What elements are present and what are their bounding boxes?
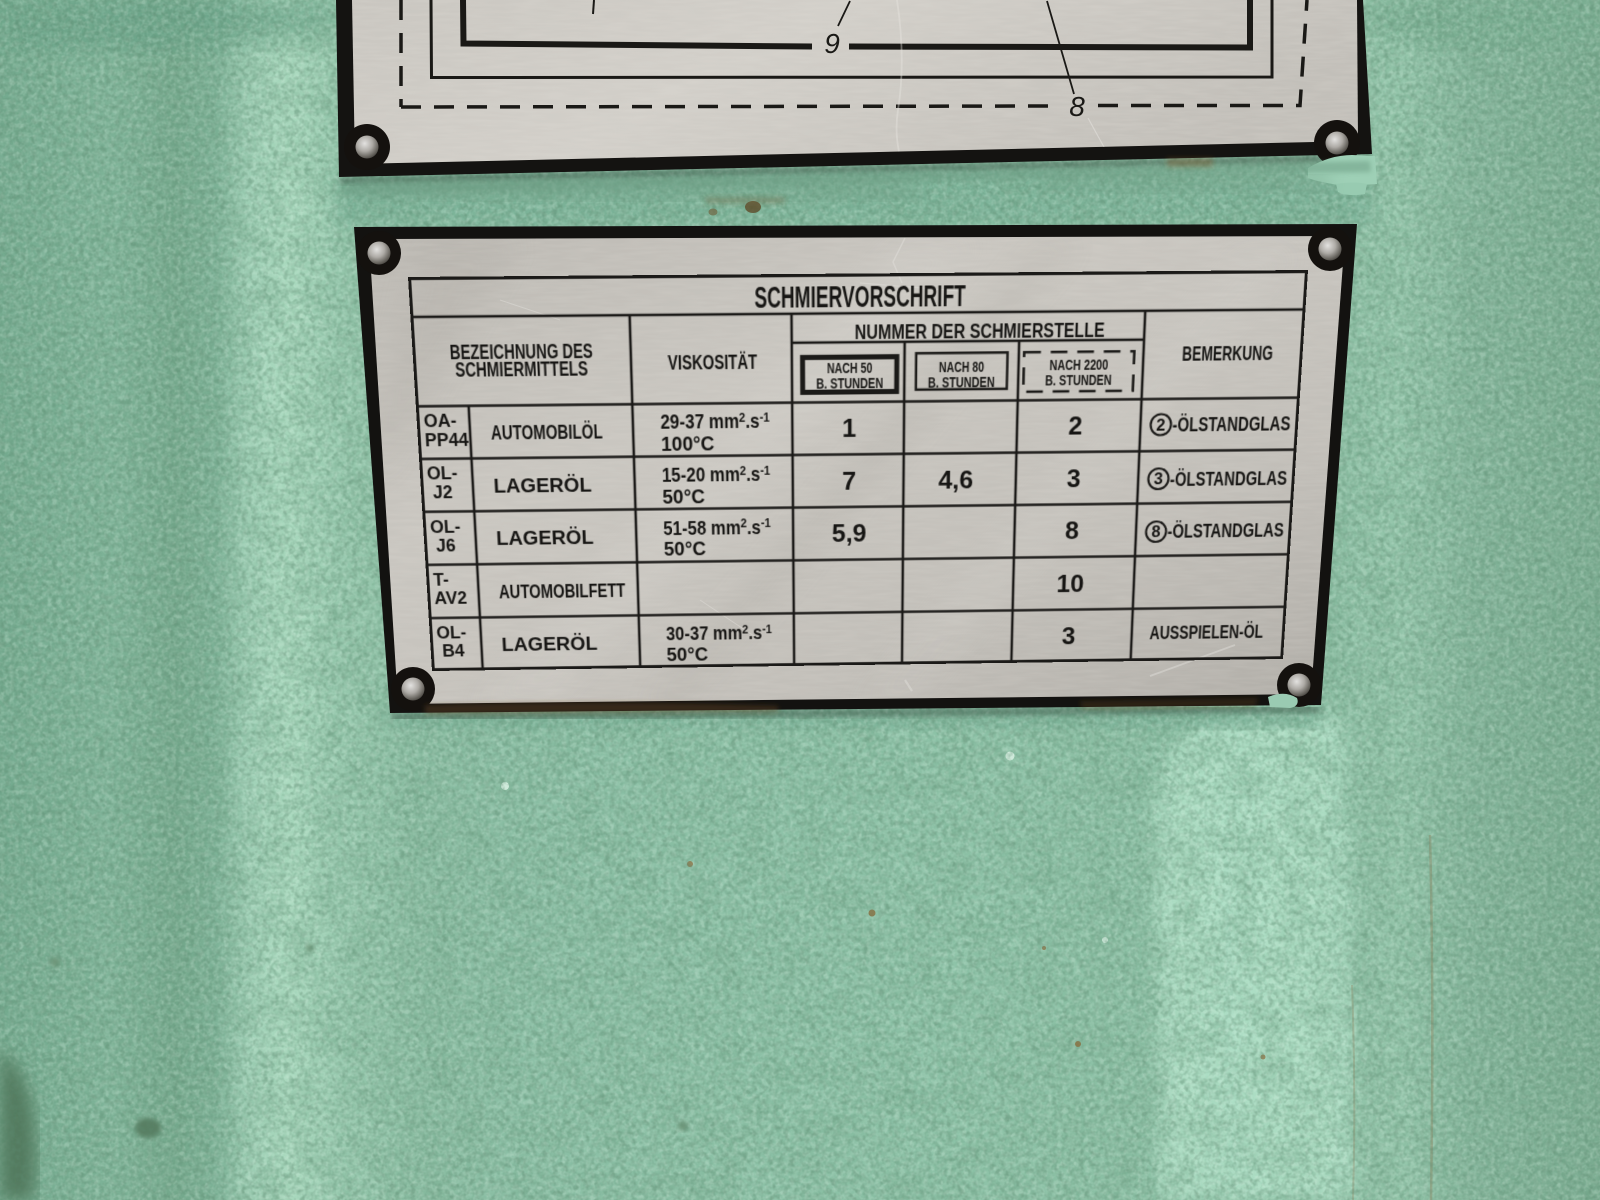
svg-text:NACH 2200: NACH 2200 [1049,359,1108,375]
svg-text:50°C: 50°C [664,539,707,561]
svg-text:BEMERKUNG: BEMERKUNG [1182,341,1274,366]
svg-text:50°C: 50°C [662,486,705,508]
svg-text:50°C: 50°C [666,645,708,666]
svg-text:29-37 mm2.s-1: 29-37 mm2.s-1 [660,410,770,434]
svg-text:NUMMER DER SCHMIERSTELLE: NUMMER DER SCHMIERSTELLE [855,318,1105,344]
svg-text:J6: J6 [436,537,457,557]
svg-text:4,6: 4,6 [938,465,973,494]
svg-text:AUTOMOBILFETT: AUTOMOBILFETT [498,580,625,603]
svg-text:8: 8 [1069,91,1085,122]
svg-text:-ÖLSTANDGLAS: -ÖLSTANDGLAS [1169,466,1287,490]
svg-text:100°C: 100°C [661,434,715,456]
svg-text:NACH 50: NACH 50 [827,362,872,378]
svg-text:LAGERÖL: LAGERÖL [501,632,598,656]
svg-text:OA-: OA- [423,412,457,432]
svg-text:1: 1 [842,414,856,443]
svg-text:J2: J2 [432,484,453,504]
svg-text:B. STUNDEN: B. STUNDEN [1045,374,1112,390]
svg-text:7: 7 [842,466,856,495]
svg-text:T-: T- [433,571,450,590]
svg-text:OL-: OL- [436,624,467,643]
svg-text:2: 2 [1156,416,1166,435]
svg-text:2: 2 [1068,411,1083,440]
svg-text:15-20 mm2.s-1: 15-20 mm2.s-1 [662,463,771,487]
svg-text:8: 8 [1065,517,1080,546]
svg-text:SCHMIERVORSCHRIFT: SCHMIERVORSCHRIFT [754,278,966,315]
svg-text:-ÖLSTANDGLAS: -ÖLSTANDGLAS [1172,412,1291,437]
svg-text:51-58 mm2.s-1: 51-58 mm2.s-1 [663,516,771,540]
svg-text:AUSSPIELEN-ÖL: AUSSPIELEN-ÖL [1149,620,1264,644]
svg-text:OL-: OL- [430,518,461,538]
svg-text:9: 9 [824,28,840,59]
svg-text:SCHMIERMITTELS: SCHMIERMITTELS [455,358,589,382]
svg-text:AUTOMOBILÖL: AUTOMOBILÖL [490,420,603,445]
svg-text:LAGERÖL: LAGERÖL [493,473,592,497]
svg-text:10: 10 [1056,569,1084,597]
svg-text:5,9: 5,9 [832,519,867,548]
svg-text:OL-: OL- [426,465,458,485]
svg-text:NACH 80: NACH 80 [939,360,984,376]
svg-text:8: 8 [1151,523,1161,541]
svg-text:B. STUNDEN: B. STUNDEN [928,376,995,392]
svg-text:LAGERÖL: LAGERÖL [496,526,594,550]
svg-text:30-37 mm2.s-1: 30-37 mm2.s-1 [666,621,773,644]
svg-text:-ÖLSTANDGLAS: -ÖLSTANDGLAS [1167,519,1284,543]
svg-text:3: 3 [1153,470,1163,489]
svg-text:AV2: AV2 [434,590,468,609]
svg-text:VISKOSITÄT: VISKOSITÄT [668,349,758,374]
svg-text:B. STUNDEN: B. STUNDEN [816,377,883,393]
svg-text:3: 3 [1066,464,1081,493]
svg-text:B4: B4 [442,643,465,662]
svg-text:PP44: PP44 [424,431,469,451]
svg-text:3: 3 [1061,622,1076,650]
